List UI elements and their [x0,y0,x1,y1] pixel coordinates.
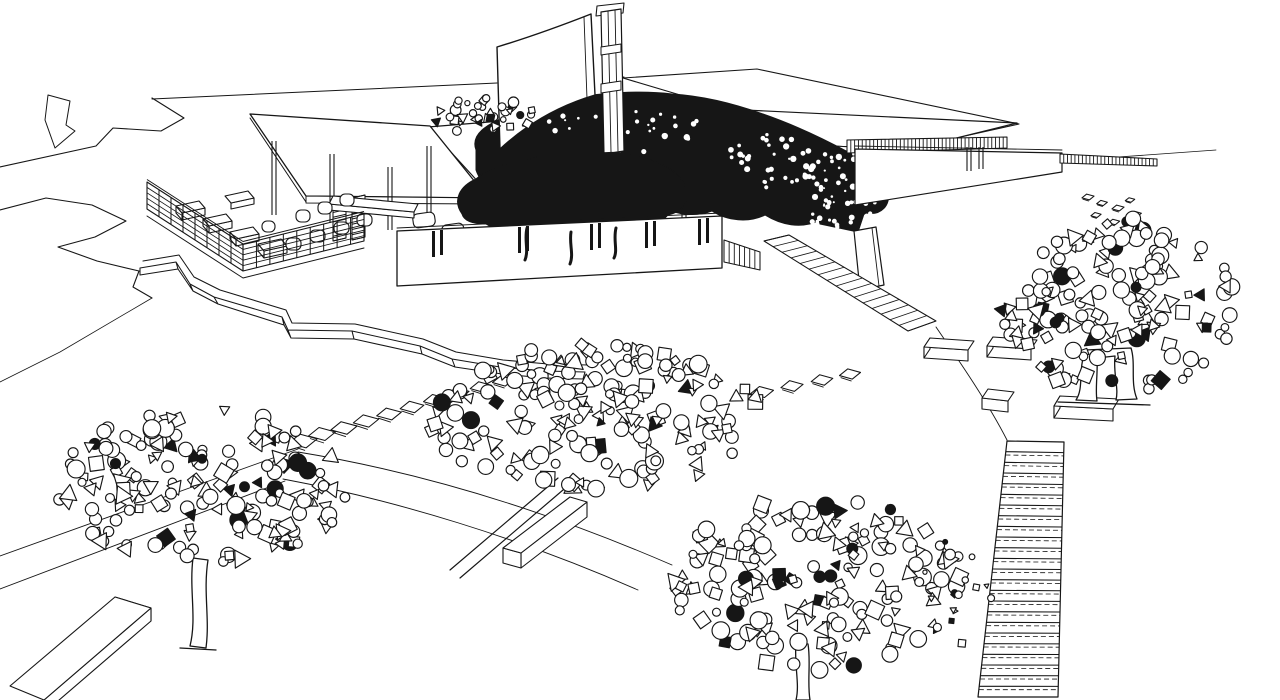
terrace-base [147,216,364,278]
architectural-sketch-canvas [0,0,1280,700]
tree-left [54,406,350,568]
grand-stairs [978,441,1064,697]
wall-right [855,149,1062,205]
tree-center [425,338,763,497]
terrain-cliff-wedge [45,95,75,148]
terrain-contour-lower [0,198,152,298]
site-sketch-drawing [0,0,1280,700]
tree-left-trunk [180,558,216,650]
wall-end-steps [724,240,760,270]
terrain-hill-line [0,298,152,382]
tree-bottom [668,495,969,678]
stairs-diagonal [764,235,936,331]
stepping-stones-right [751,369,861,400]
terrain-contour-upper [0,98,184,167]
plaza-steps-strip [1060,154,1157,166]
